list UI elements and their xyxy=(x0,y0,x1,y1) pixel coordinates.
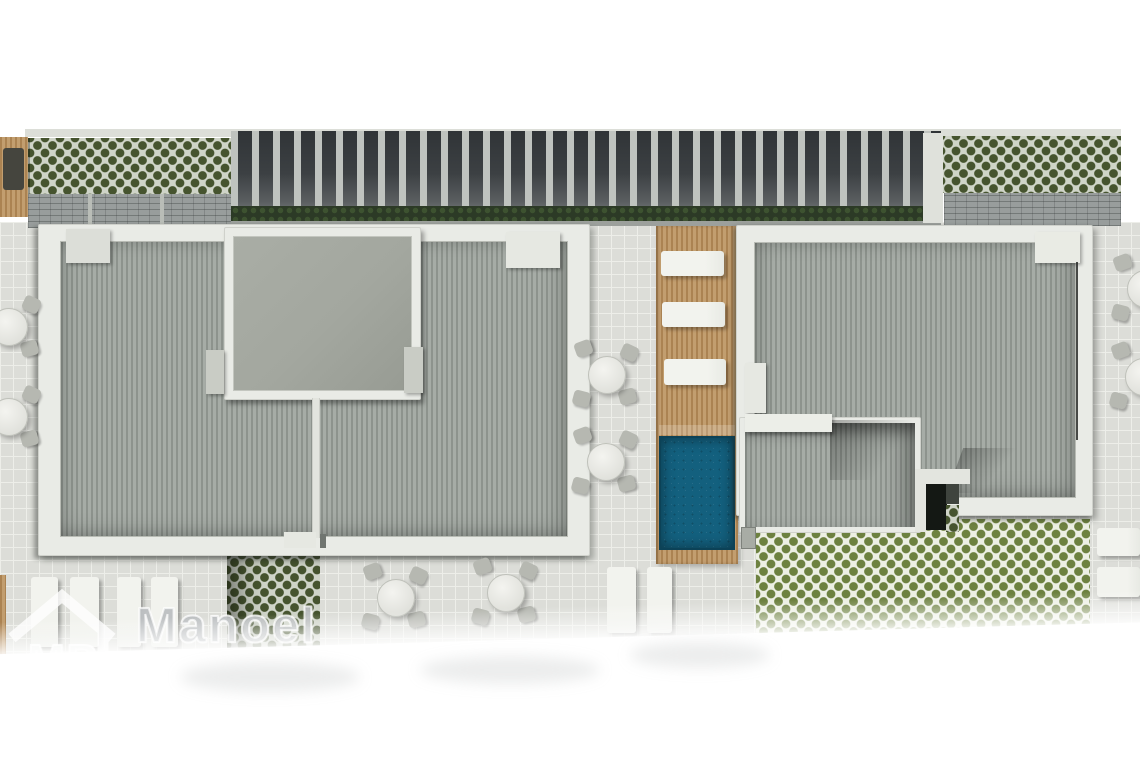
roof-equipment-box xyxy=(404,347,423,393)
round-table-with-chairs xyxy=(567,335,647,415)
cobogo-mini-panel xyxy=(946,505,959,532)
round-table-with-chairs xyxy=(1104,337,1140,417)
roof-bench-horizontal xyxy=(745,414,832,432)
roof-bench-vertical xyxy=(745,363,766,413)
swimming-pool xyxy=(659,436,735,550)
square-structure-flat-roof xyxy=(233,236,412,391)
sun-lounger xyxy=(664,359,726,385)
fade-smudge xyxy=(180,662,360,692)
sun-lounger xyxy=(661,251,724,276)
deck-step xyxy=(659,425,735,435)
wall-pilaster xyxy=(160,194,164,228)
cobogo-screen-top-left xyxy=(28,138,231,194)
site-plan-rendering: MB Manoel xyxy=(0,0,1140,760)
parapet-notch xyxy=(284,532,316,548)
sun-lounger xyxy=(662,302,725,327)
facade-gap-pier xyxy=(923,133,943,223)
roof-drain xyxy=(320,534,326,548)
round-table-with-chairs xyxy=(0,377,49,457)
brick-wall-top-right xyxy=(944,193,1121,226)
fade-smudge xyxy=(420,656,600,684)
expansion-joint-line xyxy=(1076,262,1078,440)
sun-lounger xyxy=(1097,528,1140,556)
grill-equipment xyxy=(3,148,24,190)
roof-divider-wall xyxy=(312,398,320,538)
skylight-box xyxy=(506,232,560,268)
roof-void-opening xyxy=(926,484,947,530)
parapet-step xyxy=(915,482,926,532)
dark-wall-patch xyxy=(946,484,959,504)
brick-wall-top-left xyxy=(28,194,231,228)
rooftop-unit xyxy=(66,229,110,263)
wall-pilaster xyxy=(88,194,92,228)
cobogo-screen-top-right xyxy=(941,136,1121,193)
cast-shadow xyxy=(830,420,925,480)
fade-smudge xyxy=(630,642,770,668)
skylight-box xyxy=(1035,232,1080,263)
round-table-with-chairs xyxy=(566,422,646,502)
hedge-row xyxy=(231,206,941,222)
pool-equipment-box xyxy=(741,527,756,549)
roof-equipment-box xyxy=(206,350,224,394)
round-table-with-chairs xyxy=(0,287,49,367)
round-table-with-chairs xyxy=(1106,249,1140,329)
